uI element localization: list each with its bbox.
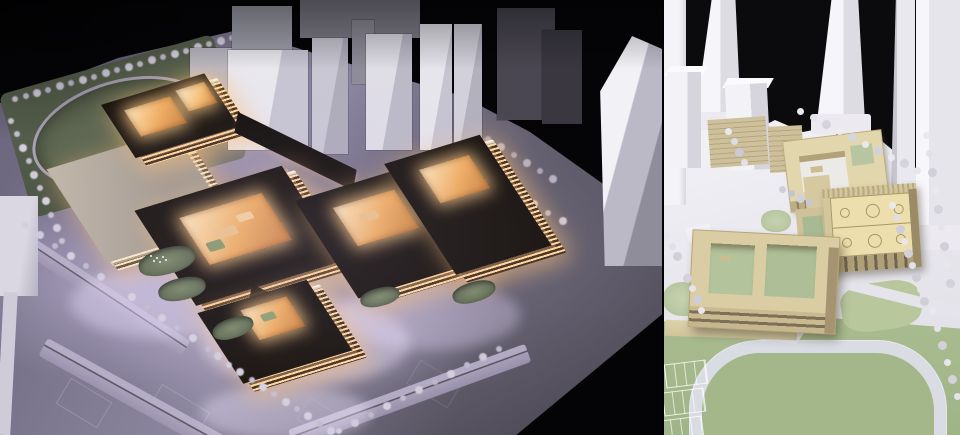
tower-base — [811, 114, 871, 134]
beige-slab-building — [707, 116, 768, 168]
courtyard-detail — [720, 256, 730, 262]
courtyard-green — [764, 244, 817, 299]
courtyard-green — [850, 143, 874, 166]
tall-tower-column — [891, 0, 915, 210]
tree-row-right-inner — [889, 202, 896, 209]
photo-seam — [662, 0, 664, 435]
tennis-court-markings — [663, 388, 706, 417]
court-circle — [865, 203, 880, 218]
dim-back-tower — [542, 30, 582, 124]
rooftop-courts — [830, 192, 914, 257]
tree-row-right-edge — [923, 132, 930, 139]
tree-row-bottom-right — [929, 308, 936, 315]
tree-row-street-left — [22, 222, 28, 228]
court-circle — [867, 233, 882, 248]
hedge-lights — [150, 255, 152, 257]
white-tower-small — [667, 72, 701, 168]
court-circle — [896, 234, 907, 245]
white-tower — [312, 38, 348, 154]
track-infield — [702, 353, 934, 435]
day-courtyard-building-big — [689, 230, 840, 334]
green-patch — [761, 210, 791, 232]
white-tower — [454, 24, 482, 144]
tree-cluster-courtyard — [779, 186, 786, 193]
court-divider — [833, 222, 911, 228]
white-tower — [420, 24, 452, 150]
tree-cluster-tower-base — [725, 128, 732, 135]
tree-row-diagonal — [797, 108, 804, 115]
light-pool — [200, 385, 370, 435]
court-circle — [842, 237, 853, 248]
court-circle — [840, 208, 851, 219]
night-model-photo — [0, 0, 663, 435]
tennis-court-markings — [663, 416, 704, 435]
tall-tower-column — [817, 0, 865, 122]
white-tower — [366, 34, 412, 150]
tall-tower-column-right — [916, 0, 960, 238]
tree-row-left-edge — [8, 118, 14, 124]
tree-row-bottom-right — [336, 428, 342, 434]
tree-row-back-edge — [12, 96, 18, 102]
day-model-photo — [663, 0, 960, 435]
tree-row-bottom — [226, 362, 232, 368]
architectural-model-photo-pair — [0, 0, 960, 435]
courtyard-green — [708, 243, 755, 295]
tree-row-left — [664, 232, 671, 239]
tennis-court-markings — [664, 360, 709, 389]
edge-white-slab — [0, 196, 38, 296]
